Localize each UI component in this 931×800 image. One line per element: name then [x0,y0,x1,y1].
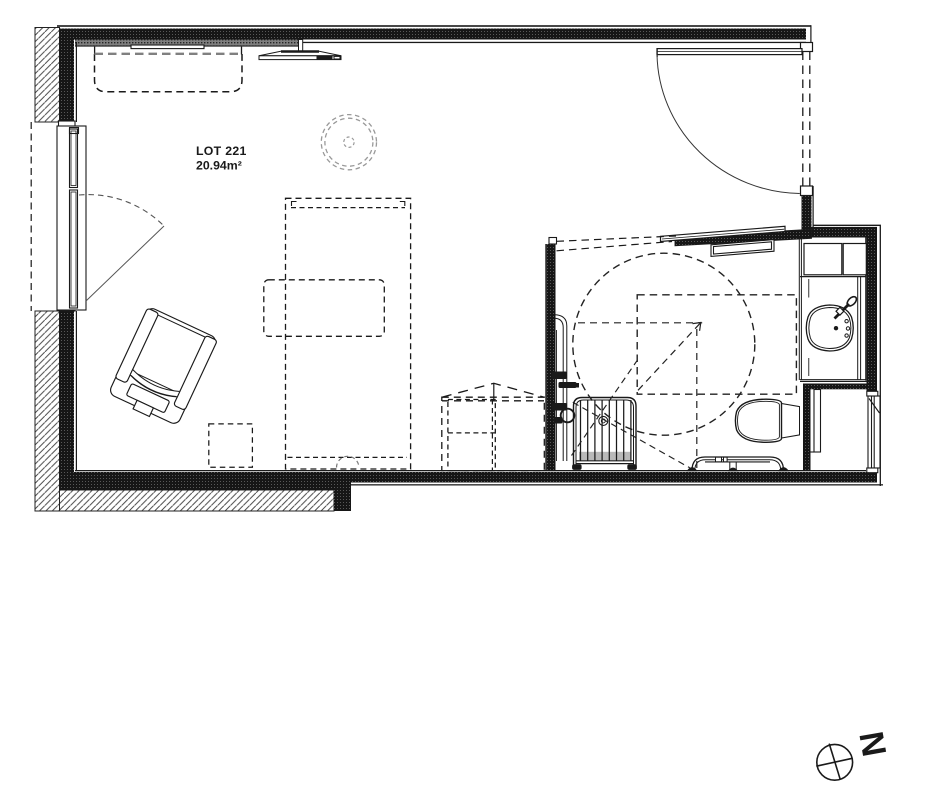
svg-text:N: N [853,728,895,759]
svg-text:LOT 221: LOT 221 [196,144,247,158]
svg-text:20.94m²: 20.94m² [196,158,242,172]
